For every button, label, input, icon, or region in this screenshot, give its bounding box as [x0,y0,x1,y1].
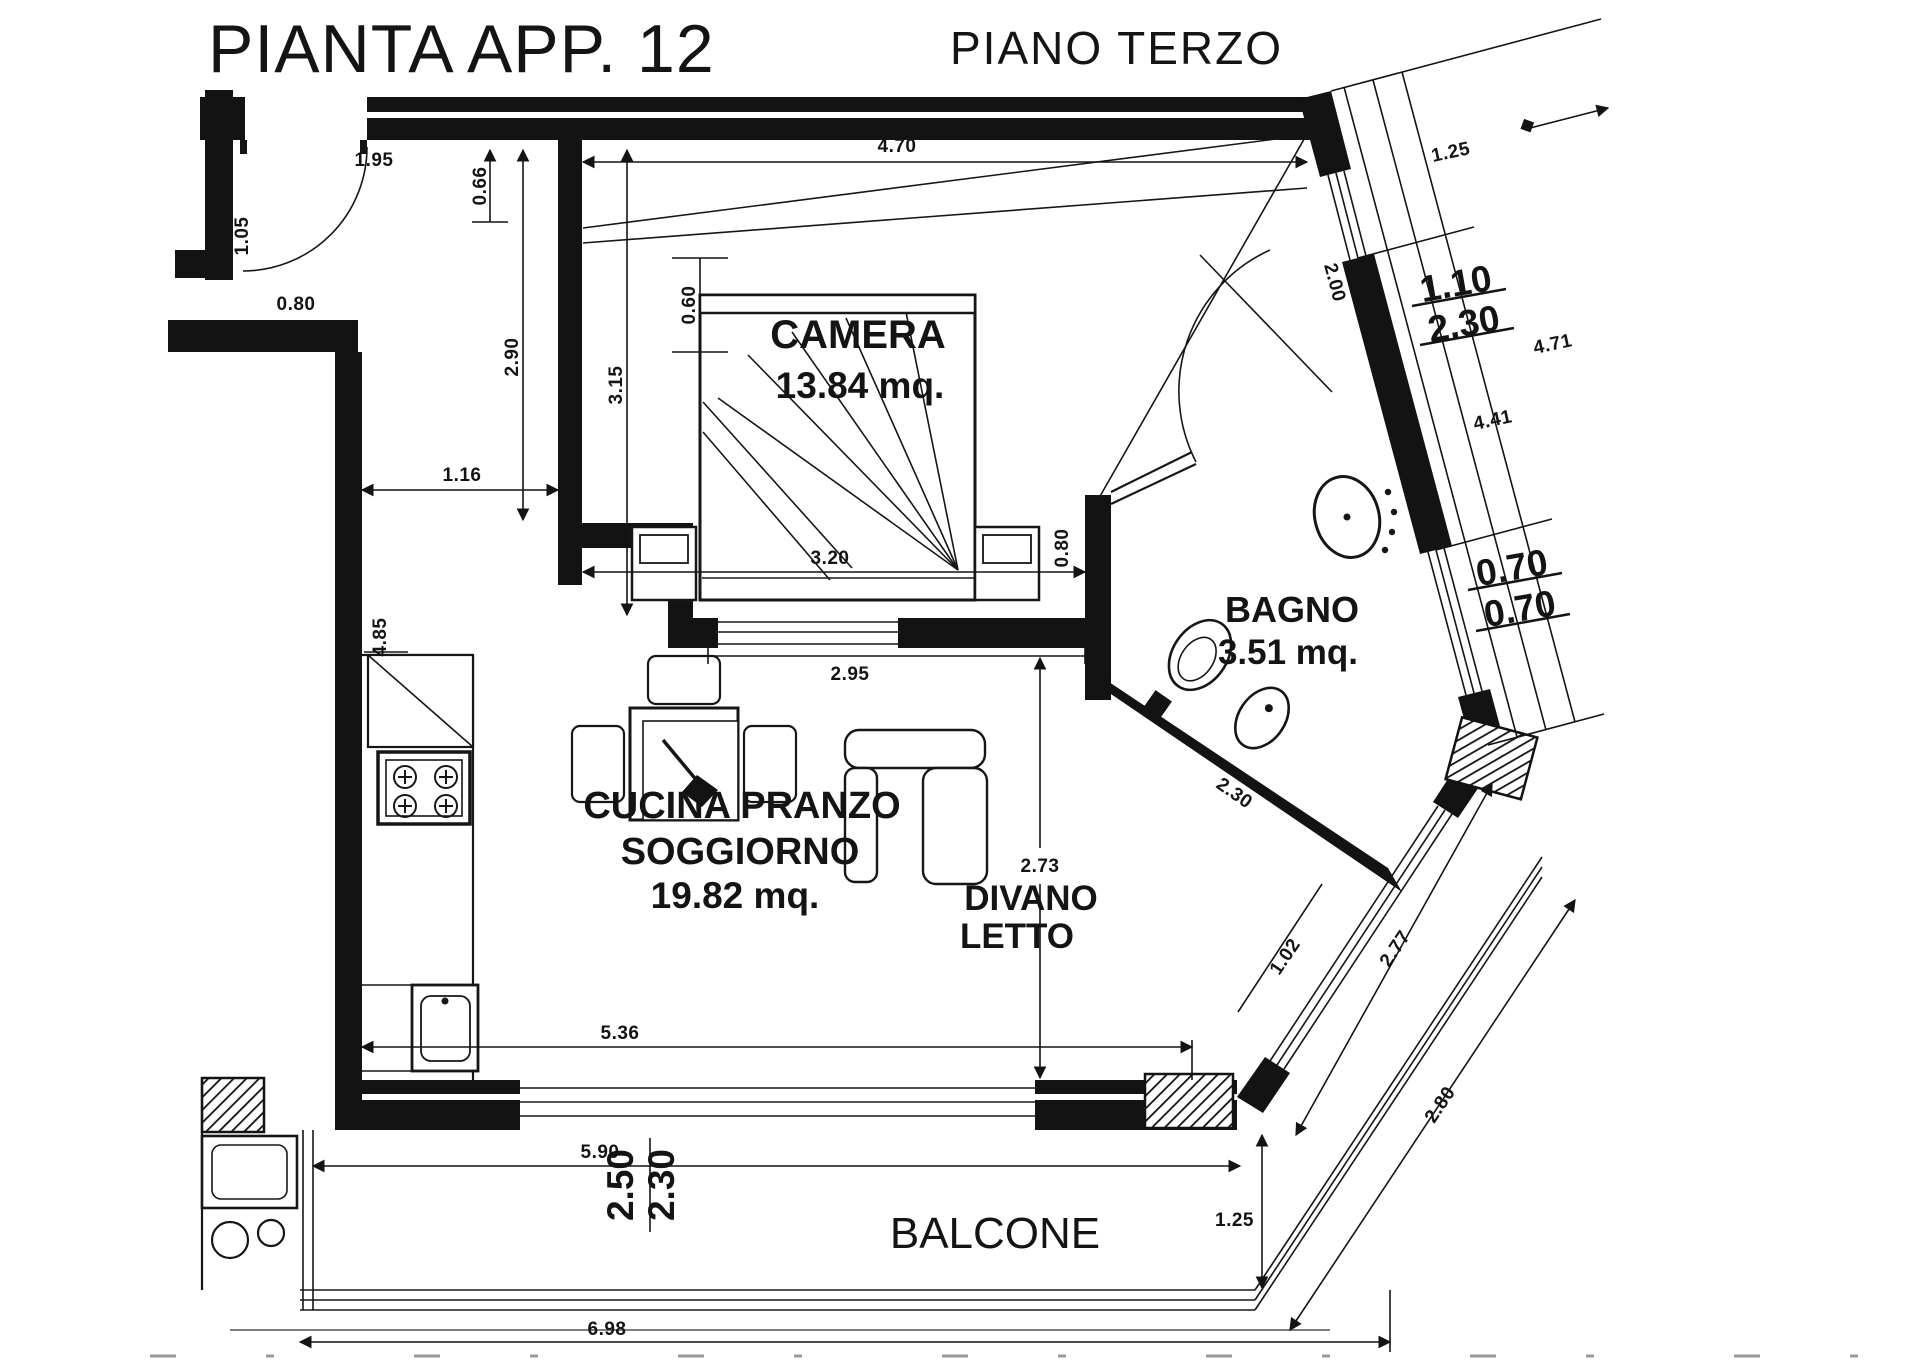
divano-label-line1: DIVANO [964,879,1098,918]
bagno-door-swing-line [1095,120,1315,505]
balcone-label: BALCONE [890,1209,1100,1258]
dim-2-90: 2.90 [502,338,523,377]
ceiling-slope-line-1 [583,135,1307,228]
camera-bottom-right [898,618,1108,648]
dim-2-50: 2.50 [600,1149,641,1221]
floor-plan-page: PIANTA APP. 12 PIANO TERZO [0,0,1920,1362]
diag-window2-line1 [1428,552,1466,695]
dim-0-66: 0.66 [470,167,491,206]
camera-area: 13.84 mq. [776,365,945,406]
kitchen-furniture [362,655,478,1080]
basin-dot-2 [1391,509,1397,515]
dim-4-71: 4.71 [1532,330,1574,359]
bagno-door-arc [1179,250,1270,462]
lower-diag-glass-3 [1270,806,1438,1061]
top-wall-inner [367,118,1315,140]
nightstand-right-top [983,535,1031,563]
bagno-label: BAGNO [1225,589,1359,630]
sofa-back [845,730,985,768]
bagno-area: 3.51 mq. [1218,633,1358,672]
neighbor-burner-1 [212,1222,248,1258]
neighbor-sink-basin [212,1145,287,1199]
diag-window2-line2 [1436,550,1474,693]
lower-diag-seg2 [1237,1057,1290,1113]
dim-3-20: 3.20 [811,548,850,569]
lower-diag-glass-2 [1277,810,1445,1065]
dim-2-80: 2.80 [1421,1083,1460,1127]
dim-2-30-bdoor: 2.30 [641,1149,682,1221]
left-pillar [202,1078,264,1132]
dim-0-60: 0.60 [679,286,700,325]
ceiling-slope-line-2 [583,188,1307,243]
dim-4-70: 4.70 [878,136,917,157]
entry-door-jamb-left [240,140,247,154]
dim-1-02: 1.02 [1266,935,1305,979]
dim-4-41: 4.41 [1472,406,1514,435]
balcony-door-opening [520,1076,1035,1134]
left-main-wall [335,352,362,1130]
camera-left-wall [558,140,582,585]
diag-chain-tick-top [1331,19,1601,91]
dim-0-80-entry: 0.80 [277,294,316,315]
washbasin-drain [1344,514,1351,521]
camera-bottom-jamb [693,618,718,648]
diag-chain-tick-mid1 [1358,227,1474,258]
divano-label-line2: LETTO [960,917,1074,956]
dim-1-25-balcony: 1.25 [1215,1210,1254,1231]
plan-floor-label: PIANO TERZO [950,22,1283,74]
dim-5-36: 5.36 [601,1023,640,1044]
dim-1-25-top: 1.25 [1430,138,1472,167]
north-arrow-base [1522,120,1534,132]
dim-3-15: 3.15 [606,366,627,405]
camera-label: CAMERA [770,313,946,357]
nightstand-left-top [640,535,688,563]
dim-0-80-bed: 0.80 [1052,529,1073,568]
left-outer-wall [205,90,233,280]
bidet [1224,678,1300,758]
cucina-label-line1: CUCINA PRANZO [583,785,900,827]
chair-top [648,656,720,704]
basin-dot-1 [1385,489,1391,495]
dim-2-73: 2.73 [1021,856,1060,877]
left-wall-stub [175,250,205,278]
bottom-pillar [1145,1074,1233,1128]
neighbor-burner-2 [258,1220,284,1246]
floor-plan-drawing: PIANTA APP. 12 PIANO TERZO [0,0,1920,1362]
dim-6-98: 6.98 [588,1319,627,1340]
dim-1-16: 1.16 [443,465,482,486]
dim-2-95: 2.95 [831,664,870,685]
basin-dot-3 [1389,529,1395,535]
sofa-seat [923,768,987,884]
bed-headboard [700,295,975,313]
cucina-area: 19.82 mq. [651,875,820,916]
bagno-door-leaf [1200,255,1332,392]
sink-basin [421,996,470,1061]
basin-dot-4 [1382,547,1388,553]
entry-door-arc [243,147,367,271]
dim-1-95: 1.95 [355,150,394,171]
dim-4-85: 4.85 [370,618,391,657]
dimension-lines [300,19,1608,1352]
dim-1-05: 1.05 [232,217,253,256]
cucina-label-line2: SOGGIORNO [621,831,860,873]
sink-faucet [442,998,449,1005]
top-wall-outer [367,97,1315,112]
entry-jog-wall [168,320,358,352]
plan-title: PIANTA APP. 12 [208,11,715,87]
north-arrow [1530,108,1608,128]
